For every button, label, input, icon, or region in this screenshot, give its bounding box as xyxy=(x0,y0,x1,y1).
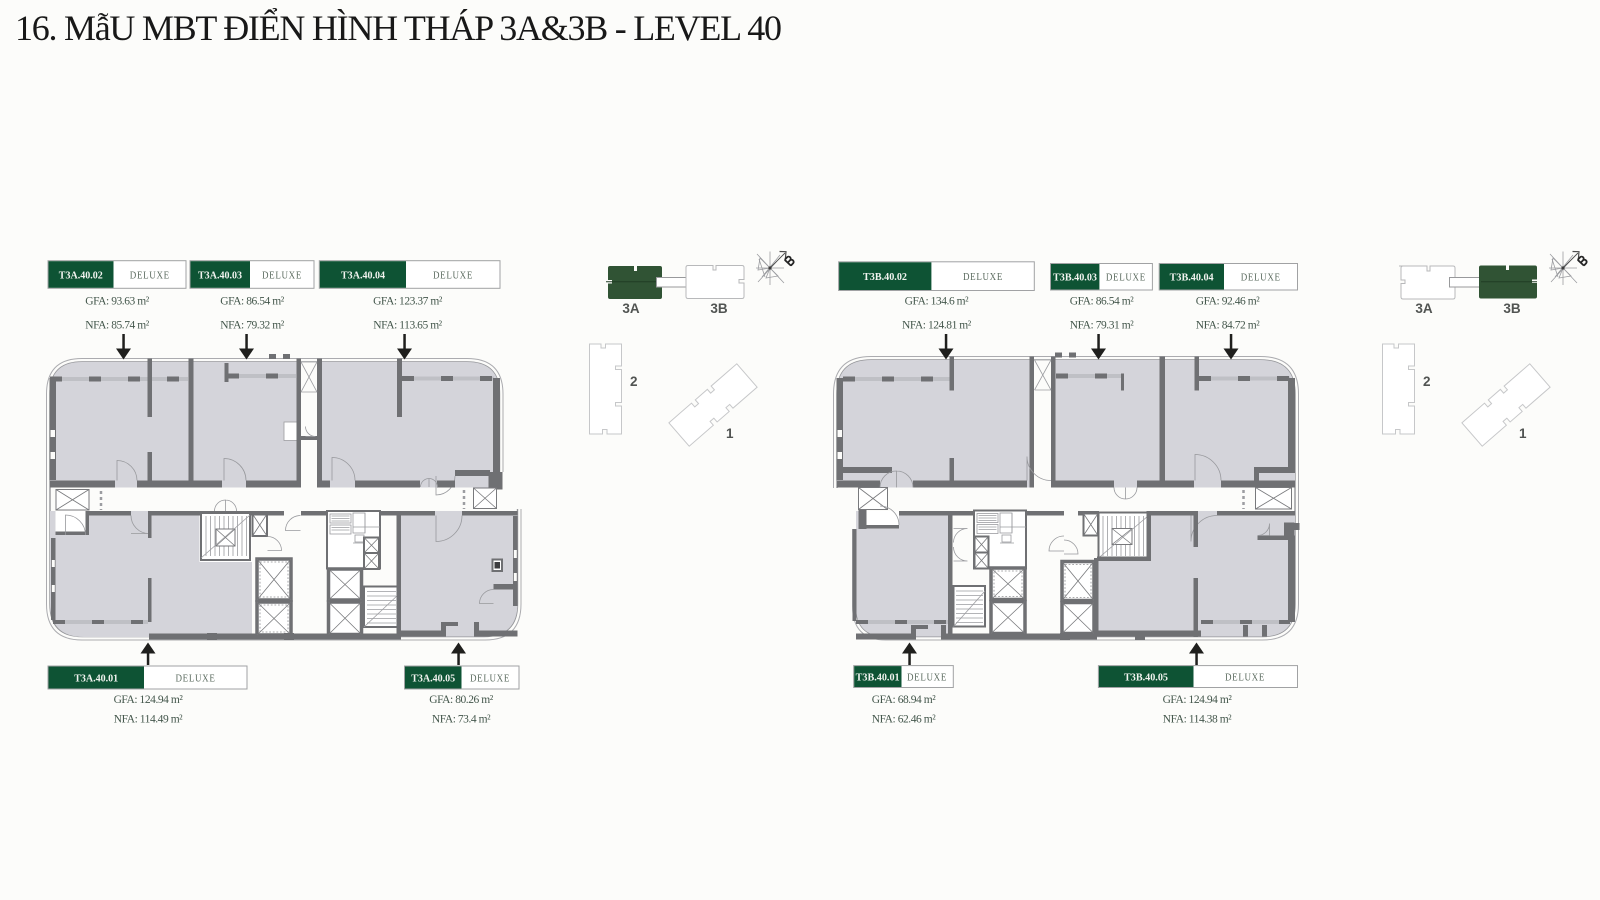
svg-text:GFA: 123.37 m²: GFA: 123.37 m² xyxy=(373,296,443,308)
svg-text:DELUXE: DELUXE xyxy=(1106,272,1146,284)
svg-text:DELUXE: DELUXE xyxy=(470,673,510,685)
svg-text:2: 2 xyxy=(1423,374,1431,389)
svg-text:NFA: 85.74 m²: NFA: 85.74 m² xyxy=(85,320,150,332)
svg-text:DELUXE: DELUXE xyxy=(433,270,473,282)
svg-text:NFA: 124.81 m²: NFA: 124.81 m² xyxy=(902,320,972,332)
svg-text:T3A.40.05: T3A.40.05 xyxy=(411,673,455,685)
svg-text:3A: 3A xyxy=(622,301,640,316)
svg-text:NFA: 62.46 m²: NFA: 62.46 m² xyxy=(872,714,937,726)
svg-text:T3B.40.05: T3B.40.05 xyxy=(1124,672,1168,684)
svg-text:NFA: 73.4 m²: NFA: 73.4 m² xyxy=(432,714,491,726)
svg-text:NFA: 79.32 m²: NFA: 79.32 m² xyxy=(220,320,285,332)
svg-text:GFA: 86.54 m²: GFA: 86.54 m² xyxy=(220,296,285,308)
svg-text:GFA: 124.94 m²: GFA: 124.94 m² xyxy=(114,694,184,706)
svg-text:DELUXE: DELUXE xyxy=(262,270,302,282)
svg-text:DELUXE: DELUXE xyxy=(176,673,216,685)
svg-text:T3A.40.03: T3A.40.03 xyxy=(198,270,243,282)
svg-text:16. MẫU MBT ĐIỂN HÌNH THÁP 3A&: 16. MẫU MBT ĐIỂN HÌNH THÁP 3A&3B - LEVEL… xyxy=(15,8,782,48)
svg-text:NFA: 114.49 m²: NFA: 114.49 m² xyxy=(114,714,183,726)
svg-text:NFA: 114.38 m²: NFA: 114.38 m² xyxy=(1163,714,1232,726)
svg-text:NFA: 79.31 m²: NFA: 79.31 m² xyxy=(1070,320,1135,332)
svg-text:NFA: 84.72 m²: NFA: 84.72 m² xyxy=(1196,320,1261,332)
svg-text:T3B.40.01: T3B.40.01 xyxy=(856,672,900,684)
svg-text:GFA: 134.6 m²: GFA: 134.6 m² xyxy=(905,296,970,308)
svg-text:DELUXE: DELUXE xyxy=(1241,272,1281,284)
svg-text:2: 2 xyxy=(630,374,638,389)
svg-text:DELUXE: DELUXE xyxy=(130,270,170,282)
svg-text:1: 1 xyxy=(726,426,734,441)
svg-text:3B: 3B xyxy=(1503,301,1521,316)
svg-text:GFA: 68.94 m²: GFA: 68.94 m² xyxy=(872,694,937,706)
svg-text:NFA: 113.65 m²: NFA: 113.65 m² xyxy=(373,320,442,332)
svg-text:T3B.40.03: T3B.40.03 xyxy=(1053,272,1098,284)
svg-text:DELUXE: DELUXE xyxy=(1225,672,1265,684)
svg-text:T3A.40.02: T3A.40.02 xyxy=(59,270,103,282)
svg-text:1: 1 xyxy=(1519,426,1527,441)
svg-text:DELUXE: DELUXE xyxy=(907,672,947,684)
svg-text:GFA: 124.94 m²: GFA: 124.94 m² xyxy=(1163,694,1233,706)
svg-text:3B: 3B xyxy=(710,301,728,316)
svg-text:GFA: 92.46 m²: GFA: 92.46 m² xyxy=(1196,296,1261,308)
svg-text:T3B.40.02: T3B.40.02 xyxy=(863,271,907,283)
svg-text:GFA: 80.26 m²: GFA: 80.26 m² xyxy=(429,694,494,706)
svg-text:GFA: 93.63 m²: GFA: 93.63 m² xyxy=(85,296,150,308)
svg-text:T3A.40.01: T3A.40.01 xyxy=(74,673,118,685)
svg-text:3A: 3A xyxy=(1415,301,1433,316)
svg-text:T3A.40.04: T3A.40.04 xyxy=(341,270,386,282)
svg-text:T3B.40.04: T3B.40.04 xyxy=(1170,272,1215,284)
svg-text:GFA: 86.54 m²: GFA: 86.54 m² xyxy=(1070,296,1135,308)
svg-text:DELUXE: DELUXE xyxy=(963,271,1003,283)
